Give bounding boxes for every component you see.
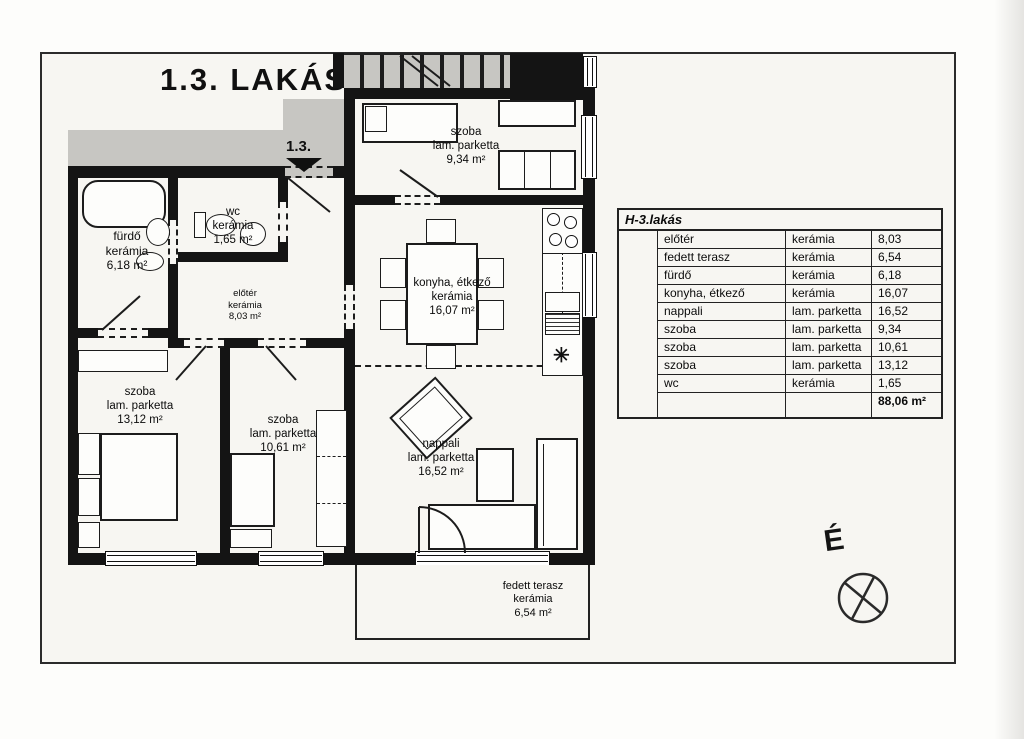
wc-door-opening [278, 202, 288, 242]
wall-top-szoba [344, 88, 595, 99]
dining-chair-left-1 [380, 258, 406, 288]
stove [542, 208, 583, 254]
staircase [344, 53, 510, 88]
wall-left [68, 166, 78, 565]
dining-chair-bottom [426, 345, 456, 369]
wardrobe-szoba-felso [498, 150, 576, 190]
wardrobe-szoba-kozep [316, 410, 347, 547]
page-title: 1.3. LAKÁS [160, 62, 347, 98]
bed-szoba-kozep [230, 453, 275, 527]
wc-toilet-tank [194, 212, 206, 238]
window-top-right [583, 56, 597, 88]
window-szoba-kozep [258, 551, 324, 566]
table-total-row: 88,06 m² [658, 393, 941, 417]
entry-label: 1.3. [286, 138, 311, 155]
nightstand-1 [78, 433, 100, 475]
desk-szoba-kozep [230, 529, 272, 548]
sofa-chaise [428, 504, 536, 550]
nightstand-3 [78, 522, 100, 548]
window-szoba-bal [105, 551, 197, 566]
kitchen-cabinet [545, 292, 580, 312]
furdo-door-opening [98, 328, 148, 338]
table-row: szobalam. parketta13,12 [658, 357, 941, 375]
label-szoba-kozep: szoba lam. parketta 10,61 m² [250, 413, 316, 455]
shelf-szoba-bal [78, 350, 168, 372]
scan-edge-shadow [994, 0, 1024, 739]
szoba-mid-door-opening [258, 338, 306, 348]
table-row: fedett teraszkerámia6,54 [658, 249, 941, 267]
entry-arrow-icon [286, 158, 322, 172]
label-wc: wc kerámia 1,65 m² [213, 205, 254, 247]
window-konyha [581, 252, 597, 318]
wall-top-left-a [68, 166, 285, 178]
coffee-table [476, 448, 514, 502]
table-row: fürdőkerámia6,18 [658, 267, 941, 285]
table-row: konyha, étkezőkerámia16,07 [658, 285, 941, 303]
label-eloter: előtér kerámia 8,03 m² [228, 288, 262, 323]
label-furdo: fürdő kerámia 6,18 m² [106, 229, 149, 273]
kitchen-sink: ✳ [544, 338, 581, 374]
szoba-felso-door-opening [395, 195, 440, 205]
table-row: szobalam. parketta10,61 [658, 339, 941, 357]
corridor-area-upper [283, 99, 344, 132]
table-row: előtérkerámia8,03 [658, 231, 941, 249]
dining-chair-left-2 [380, 300, 406, 330]
eloter-konyha-opening [344, 285, 355, 329]
szoba-left-door-opening [184, 338, 224, 348]
area-table-title: H-3.lakás [619, 210, 941, 231]
label-szoba-bal: szoba lam. parketta 13,12 m² [107, 385, 173, 427]
wall-szoba-divider [220, 348, 230, 553]
label-nappali: nappali lam. parketta 16,52 m² [408, 437, 474, 479]
fridge [545, 313, 580, 335]
stair-post-left [333, 53, 344, 88]
bed-szoba-bal [100, 433, 178, 521]
label-szoba-felso: szoba lam. parketta 9,34 m² [433, 125, 499, 167]
table-total-value: 88,06 m² [872, 393, 941, 417]
sink-symbol-icon: ✳ [553, 343, 570, 368]
furdo-sink [146, 218, 170, 246]
table-row: szobalam. parketta9,34 [658, 321, 941, 339]
terrace-door-glass [415, 551, 550, 566]
nightstand-2 [78, 478, 100, 516]
table-row: wckerámia1,65 [658, 375, 941, 393]
area-table-spacer-column [619, 231, 658, 417]
sofa-back [536, 438, 578, 550]
table-row: nappalilam. parketta16,52 [658, 303, 941, 321]
cabinet-szoba-felso [498, 100, 576, 127]
area-table: H-3.lakás előtérkerámia8,03 fedett teras… [617, 208, 943, 419]
dining-chair-top [426, 219, 456, 243]
window-szoba-felso [581, 115, 597, 179]
furdo-wc-opening [168, 220, 178, 264]
bed-pillow-szoba-felso [365, 106, 387, 132]
label-konyha: konyha, étkező kerámia 16,07 m² [413, 276, 490, 318]
label-terasz: fedett terasz kerámia 6,54 m² [503, 580, 564, 620]
wall-wc-bottom [168, 252, 288, 262]
wall-konyha-top [355, 195, 583, 205]
